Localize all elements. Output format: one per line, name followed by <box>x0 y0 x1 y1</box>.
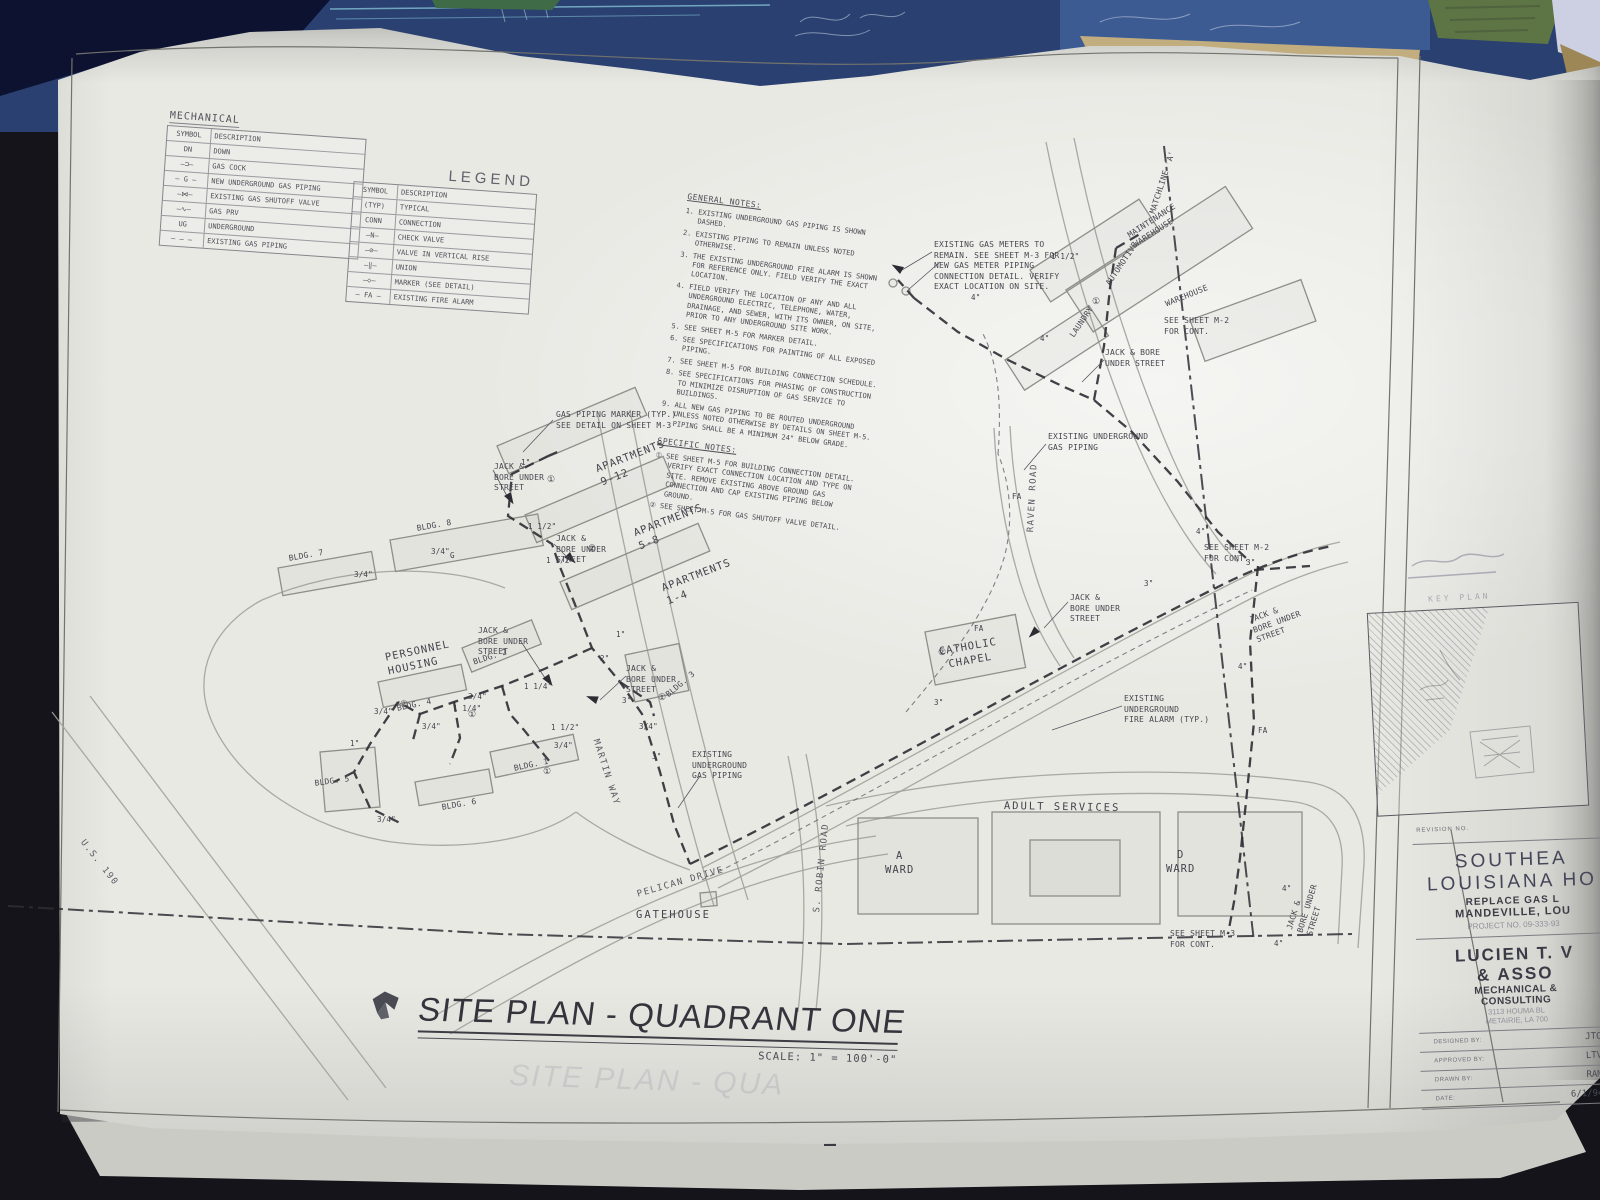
label-gatehouse: GATEHOUSE <box>636 909 711 923</box>
note-tag-1: ① <box>1092 297 1100 309</box>
label-a-ward: A WARD <box>885 850 914 878</box>
pipe-size: 1" <box>350 739 359 749</box>
callout-existing-gas-piping: EXISTING UNDERGROUND GAS PIPING <box>692 750 747 782</box>
label-apartments-9-12: APARTMENTS 9-12 <box>594 438 672 490</box>
pipe-size: 1 1/4" <box>524 682 552 692</box>
callout-see-sheet-m3: SEE SHEET M-3 FOR CONT. <box>1170 929 1235 950</box>
project-identification: SOUTHEA LOUISIANA HO REPLACE GAS L MANDE… <box>1413 838 1600 940</box>
label-catholic-chapel: CATHOLIC CHAPEL <box>938 636 1001 673</box>
label-bldg7: BLDG. 7 <box>288 548 324 564</box>
pipe-size: 3" <box>652 752 661 762</box>
pipe-size: 1 1/2" <box>546 556 574 566</box>
callout-jack-bore: JACK & BORE UNDER STREET <box>1105 348 1165 369</box>
pipe-size: 4" <box>1238 662 1247 672</box>
callout-jack-bore: JACK & BORE UNDER STREET <box>494 462 544 494</box>
pipe-size: 4" <box>1196 527 1205 537</box>
callout-jack-bore: JACK & BORE UNDER STREET <box>1070 593 1120 625</box>
key-plan-box <box>1367 601 1589 816</box>
pipe-size: 3" <box>934 698 943 708</box>
label-apartments-1-4: APARTMENTS 1-4 <box>660 557 738 609</box>
title-block: REVISION NO. SOUTHEA LOUISIANA HO REPLAC… <box>1412 819 1600 1126</box>
pipe-size: 1 1/2" <box>551 723 579 733</box>
note-tag-1: ① <box>468 710 476 722</box>
callout-existing-gas-piping: EXISTING UNDERGROUND GAS PIPING <box>1048 432 1148 453</box>
pipe-size: 3/4" <box>422 722 441 732</box>
pipe-size: 3/4" <box>431 547 450 557</box>
fire-alarm-mark: FA <box>974 624 983 634</box>
label-us-190: U.S. 190 <box>77 838 120 889</box>
pipe-size: 3" <box>1246 558 1255 568</box>
photo-stage: MECHANICAL LEGEND SYMBOLDESCRIPTION DNDO… <box>0 0 1600 1200</box>
gas-line-mark: G <box>450 551 455 561</box>
note-tag-1: ① <box>658 693 666 705</box>
label-apartments-5-8: APARTMENTS 5-8 <box>632 502 710 554</box>
note-tag-2: ② <box>938 648 946 660</box>
label-adult-services: ADULT SERVICES <box>1004 800 1121 816</box>
callout-gas-piping-marker: GAS PIPING MARKER (TYP.) SEE DETAIL ON S… <box>556 410 676 431</box>
note-tag-1: ① <box>547 475 555 487</box>
key-plan-quadrant-hatch <box>1368 602 1588 815</box>
pipe-size: 3/4" <box>468 692 487 702</box>
pipe-size: 1 1/2" <box>528 522 556 532</box>
pipe-size: 3" <box>1144 579 1153 589</box>
approved-by-label: APPROVED BY: <box>1434 1057 1485 1065</box>
approved-by-value: LTV <box>1586 1051 1600 1062</box>
pipe-size: 4" <box>971 293 980 303</box>
pipe-size: 3" <box>622 696 631 706</box>
label-bldg8: BLDG. 8 <box>416 518 452 534</box>
callout-jack-bore: JACK & BORE UNDER STREET <box>1248 599 1306 646</box>
north-arrow-logo-icon <box>368 989 403 1022</box>
designed-by-label: DESIGNED BY: <box>1433 1038 1482 1046</box>
engineering-firm: LUCIEN T. V & ASSO MECHANICAL & CONSULTI… <box>1416 933 1600 1034</box>
key-plan: KEY PLAN <box>1366 587 1590 836</box>
ghost-bleed-title: SITE PLAN - QUA <box>509 1056 785 1105</box>
pipe-size: 1" <box>521 458 530 468</box>
drawn-by-value: RAM <box>1586 1069 1600 1080</box>
pipe-size: 4" <box>1282 884 1291 894</box>
pipe-size: 3/4" <box>554 741 573 751</box>
label-martin-way: MARTIN WAY <box>589 738 622 807</box>
designed-by-value: JTC <box>1585 1032 1600 1043</box>
label-laundry: LAUNDRY <box>1068 305 1096 340</box>
note-tag-2: ② <box>400 700 408 712</box>
pipe-size: 4" <box>1274 939 1283 949</box>
pipe-size: 3/4" <box>354 570 373 580</box>
label-pelican-drive: PELICAN DRIVE <box>636 865 726 901</box>
label-bldg5: BLDG. 5 <box>314 774 350 789</box>
pipe-size: 3/4" <box>377 815 396 825</box>
date-value: 6/1/94 <box>1571 1088 1600 1099</box>
note-tag-2: ② <box>588 544 596 556</box>
pipe-size: 4" <box>1040 334 1049 344</box>
callout-existing-gas-meters: EXISTING GAS METERS TO REMAIN. SEE SHEET… <box>934 240 1059 293</box>
label-automotive: AUTOMOTIVE <box>1104 240 1141 287</box>
fire-alarm-mark: FA <box>1012 492 1021 502</box>
label-s-robin-road: S. ROBIN ROAD <box>812 823 833 914</box>
pipe-size: 3/4" <box>374 707 393 717</box>
date-label: DATE: <box>1435 1096 1455 1103</box>
pipe-size: 2" <box>600 654 609 664</box>
callout-see-sheet-m2: SEE SHEET M-2 FOR CONT. <box>1204 543 1269 564</box>
fire-alarm-mark: FA <box>1258 726 1267 736</box>
label-bldg6: BLDG. 6 <box>441 797 477 813</box>
label-personnel-housing: PERSONNEL HOUSING <box>384 638 454 679</box>
label-warehouse: WAREHOUSE <box>1164 283 1210 310</box>
callout-jack-bore: JACK & BORE UNDER STREET <box>1285 880 1330 937</box>
note-tag-1: ① <box>543 767 551 779</box>
callout-existing-fire-alarm: EXISTING UNDERGROUND FIRE ALARM (TYP.) <box>1124 694 1209 726</box>
drawn-by-label: DRAWN BY: <box>1435 1076 1473 1083</box>
label-d-ward: D WARD <box>1166 849 1195 877</box>
pipe-size: 1 1/2" <box>1051 252 1079 262</box>
pipe-size: 1" <box>616 630 625 640</box>
pipe-size: 3/4" <box>639 722 658 732</box>
label-raven-road: RAVEN ROAD <box>1026 463 1041 533</box>
callout-see-sheet-m2: SEE SHEET M-2 FOR CONT. <box>1164 316 1229 337</box>
